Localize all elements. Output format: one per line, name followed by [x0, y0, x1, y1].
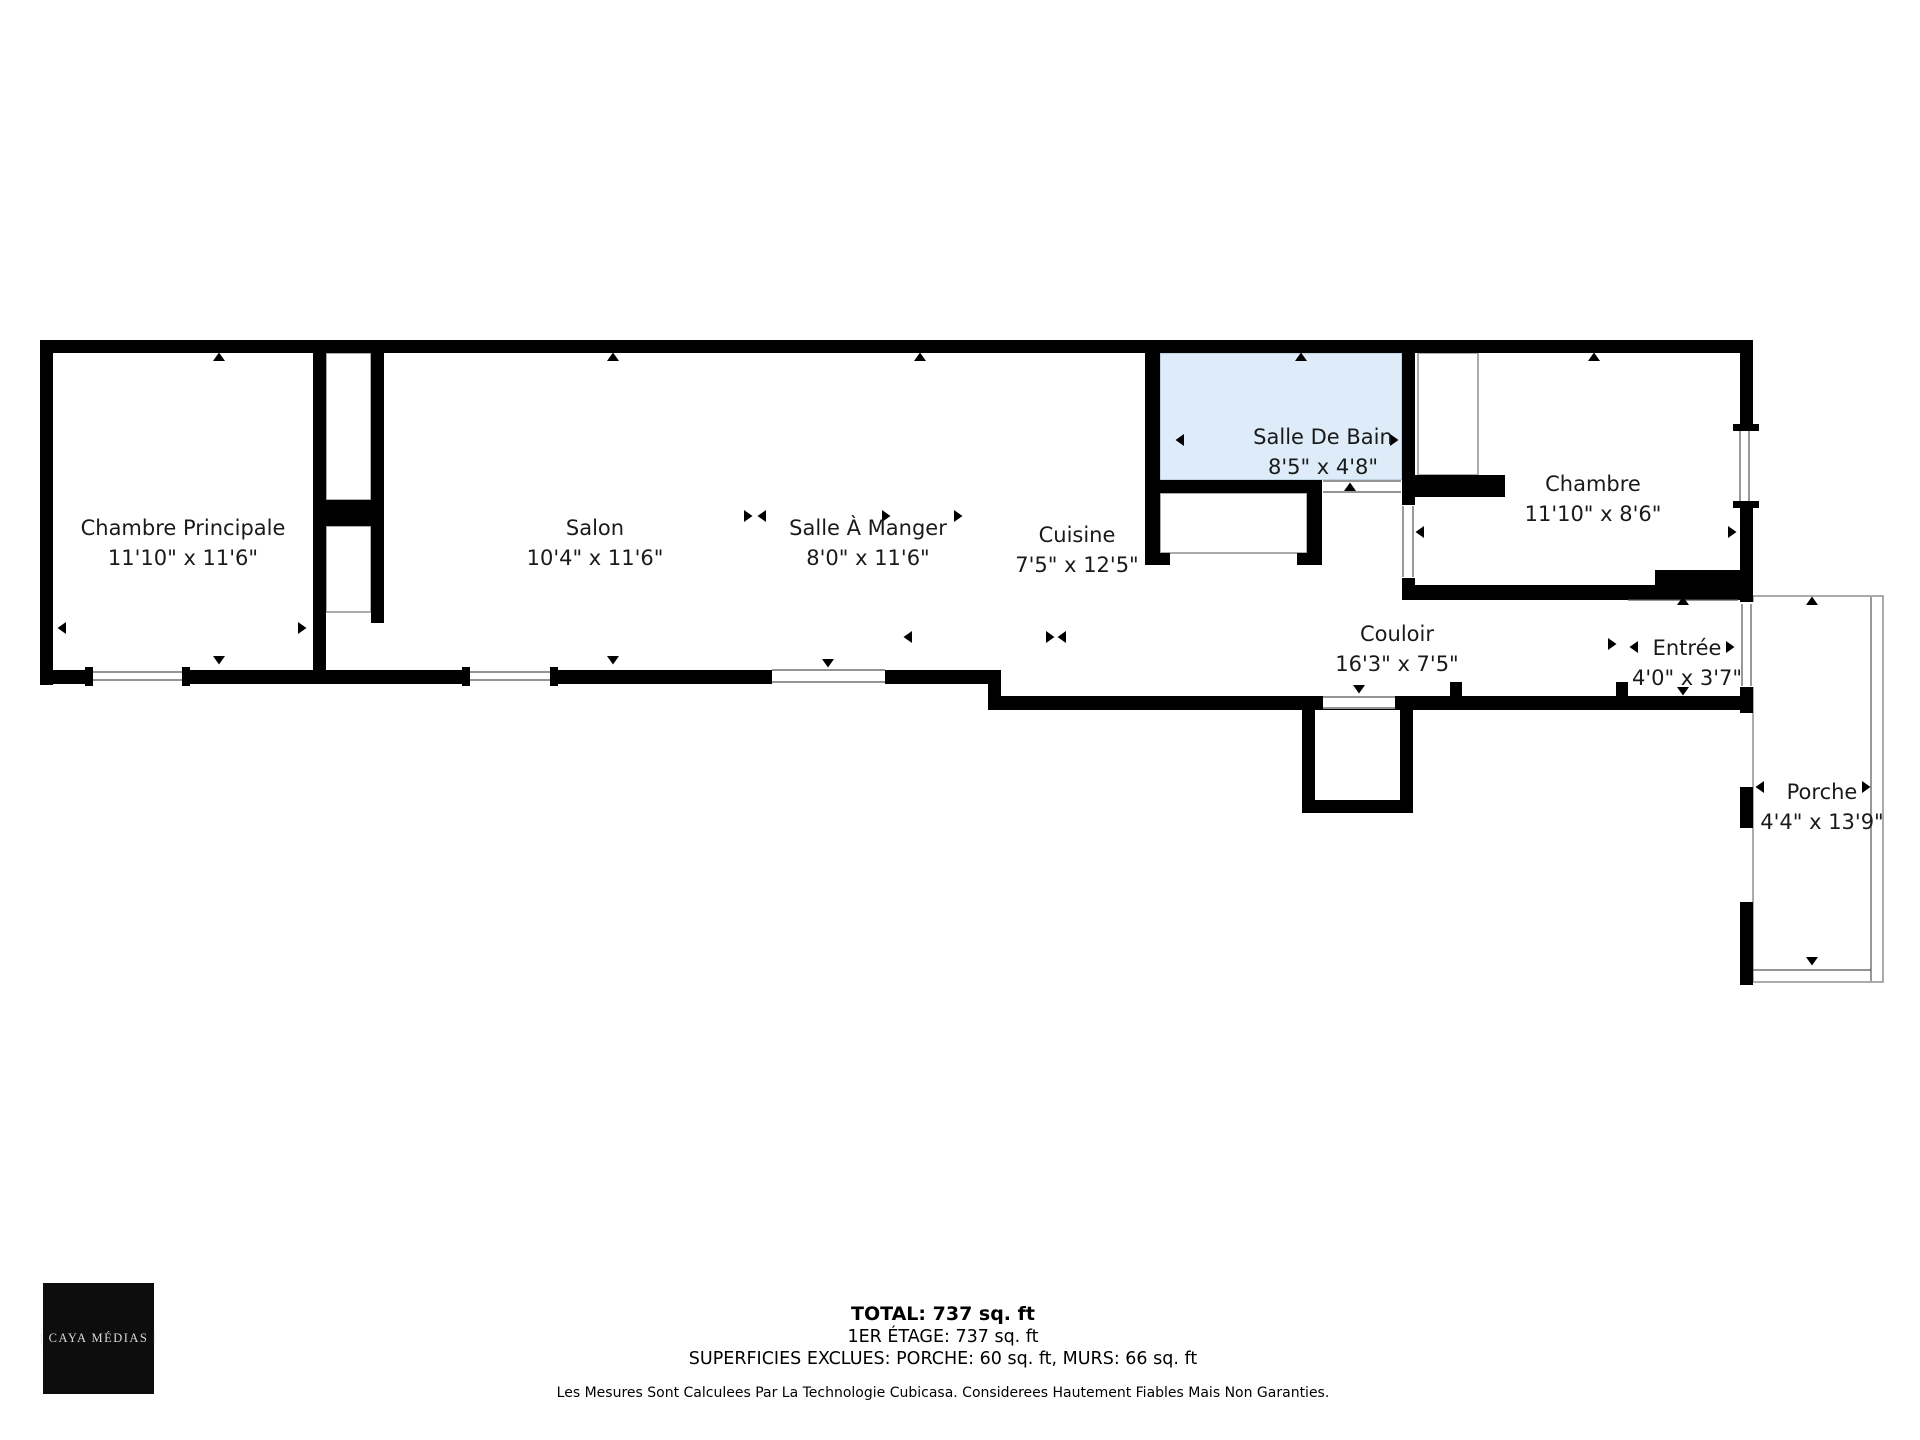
room-label-couloir: Couloir: [1360, 622, 1434, 646]
door-or-window-opening: [1733, 424, 1759, 508]
room-dims-porche: 4'4" x 13'9": [1760, 810, 1883, 834]
dimension-arrow-right-icon: [1728, 526, 1737, 538]
dimension-arrow-up-icon: [1588, 353, 1600, 362]
summary-block: TOTAL: 737 sq. ft 1ER ÉTAGE: 737 sq. ft …: [443, 1303, 1443, 1402]
room-label-chambre: Chambre: [1545, 472, 1641, 496]
wall-segment: [988, 670, 1001, 710]
wall-segment: [1655, 570, 1753, 600]
dimension-arrow-down-icon: [1353, 685, 1365, 694]
wall-segment: [371, 353, 384, 623]
total-area-text: TOTAL: 737 sq. ft: [443, 1303, 1443, 1326]
wall-segment: [1740, 787, 1753, 828]
floor-area-text: 1ER ÉTAGE: 737 sq. ft: [443, 1326, 1443, 1348]
dimension-arrow-left-icon: [1416, 526, 1425, 538]
closet-outline: [326, 353, 371, 500]
dimension-arrow-down-icon: [607, 656, 619, 665]
dimension-arrow-right-icon: [1046, 631, 1055, 643]
door-or-window-opening: [85, 667, 190, 686]
window-end-cap: [182, 667, 190, 686]
dimension-arrow-down-icon: [213, 656, 225, 665]
dimension-arrow-up-icon: [607, 353, 619, 362]
window-end-cap: [1733, 501, 1759, 508]
room-label-cuisine: Cuisine: [1039, 523, 1116, 547]
room-label-salle-de-bain: Salle De Bain: [1253, 425, 1393, 449]
closet-outline: [1160, 493, 1307, 553]
dimension-arrow-right-icon: [298, 622, 307, 634]
room-label-entree: Entrée: [1653, 636, 1722, 660]
wall-segment: [1402, 585, 1657, 600]
dimension-arrow-up-icon: [914, 353, 926, 362]
room-dims-salle-de-bain: 8'5" x 4'8": [1268, 455, 1378, 479]
window-end-cap: [1160, 553, 1170, 565]
window-end-cap: [1733, 424, 1759, 431]
wall-segment: [1302, 800, 1413, 813]
wall-segment: [1740, 687, 1753, 713]
caya-medias-logo: | CAYA MÉDIAS |: [43, 1283, 154, 1394]
wall-segment: [1145, 480, 1322, 493]
room-label-salle-a-manger: Salle À Manger: [789, 515, 947, 540]
wall-segment: [1740, 902, 1753, 985]
closet-outline: [326, 526, 371, 612]
logo-text: | CAYA MÉDIAS |: [40, 1331, 157, 1346]
wall-segment: [1450, 682, 1462, 696]
room-dims-salle-a-manger: 8'0" x 11'6": [806, 546, 929, 570]
dimension-arrow-left-icon: [904, 631, 913, 643]
room-dims-entree: 4'0" x 3'7": [1632, 666, 1742, 690]
excluded-area-text: SUPERFICIES EXCLUES: PORCHE: 60 sq. ft, …: [443, 1348, 1443, 1370]
door-or-window-opening: [462, 667, 558, 686]
wall-segment: [1302, 696, 1315, 813]
room-dims-salon: 10'4" x 11'6": [527, 546, 664, 570]
window-end-cap: [462, 667, 470, 686]
dimension-arrow-right-icon: [1608, 638, 1617, 650]
wall-segment: [1616, 682, 1628, 698]
room-dims-cuisine: 7'5" x 12'5": [1015, 553, 1138, 577]
window-end-cap: [1297, 553, 1307, 565]
wall-segment: [1400, 696, 1413, 813]
dimension-arrow-right-icon: [954, 510, 963, 522]
wall-segment: [40, 340, 1753, 353]
dimension-arrow-right-icon: [1726, 641, 1735, 653]
wall-segment: [40, 340, 53, 685]
dimension-arrow-up-icon: [1806, 597, 1818, 606]
room-label-porche: Porche: [1787, 780, 1858, 804]
walls: [40, 340, 1753, 985]
wall-segment: [1402, 578, 1415, 600]
dimension-arrow-right-icon: [744, 510, 753, 522]
room-dims-chambre: 11'10" x 8'6": [1525, 502, 1662, 526]
wall-segment: [1145, 340, 1160, 565]
window-end-cap: [85, 667, 93, 686]
wall-segment: [1402, 340, 1415, 505]
wall-segment: [1415, 475, 1505, 497]
floor-plan: Chambre Principale 11'10" x 11'6" Salon …: [0, 0, 1920, 1440]
dimension-arrow-right-icon: [1862, 781, 1871, 793]
dimension-arrow-left-icon: [1630, 641, 1639, 653]
dimension-arrow-down-icon: [1806, 957, 1818, 966]
wall-segment: [313, 500, 384, 526]
dimension-arrow-up-icon: [213, 353, 225, 362]
window-end-cap: [550, 667, 558, 686]
room-label-chambre-principale: Chambre Principale: [81, 516, 286, 540]
room-dims-chambre-principale: 11'10" x 11'6": [108, 546, 258, 570]
dimension-arrow-down-icon: [822, 659, 834, 668]
disclaimer-text: Les Mesures Sont Calculees Par La Techno…: [443, 1384, 1443, 1402]
door-or-window-opening: [1322, 480, 1402, 493]
dimension-arrow-left-icon: [758, 510, 767, 522]
closet-outline: [1418, 353, 1478, 475]
dimension-arrow-left-icon: [58, 622, 67, 634]
dimension-arrow-left-icon: [1756, 781, 1765, 793]
room-dims-couloir: 16'3" x 7'5": [1335, 652, 1458, 676]
wall-segment: [1307, 480, 1322, 565]
room-label-salon: Salon: [566, 516, 624, 540]
dimension-arrow-left-icon: [1058, 631, 1067, 643]
